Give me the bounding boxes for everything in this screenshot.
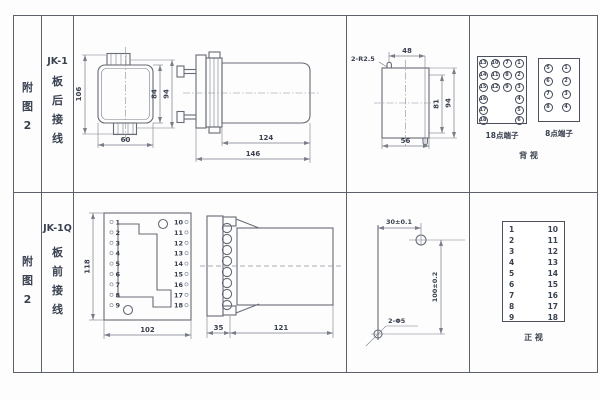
col-divider-1 <box>41 15 42 373</box>
dim-118: 118 <box>84 259 92 274</box>
terminal-14: 14 <box>479 71 488 80</box>
col-divider-4 <box>469 15 470 373</box>
rear-view-drawing: 106 84 94 60 <box>75 47 175 148</box>
fig-char: 图 <box>14 97 41 116</box>
dim-100: 100±0.2 <box>431 272 439 303</box>
wiring-char: 接 <box>42 110 73 129</box>
radius-label: 2-R2.5 <box>351 55 375 63</box>
panel-num-6: 6 <box>509 280 514 289</box>
fig-char: 附 <box>14 78 41 97</box>
panel-num-12: 12 <box>536 247 558 256</box>
terminal-8p-4: 4 <box>562 103 571 112</box>
drawing-sheet: 附 图 2 JK-1 板 后 接 线 106 84 <box>0 0 600 400</box>
table-border-right <box>597 15 598 373</box>
svg-text:7: 7 <box>116 281 121 289</box>
terminal-8p-5: 5 <box>544 64 553 73</box>
terminal-8: 8 <box>503 71 512 80</box>
mounting-hole-top <box>159 220 168 229</box>
svg-text:13: 13 <box>174 250 183 258</box>
svg-text:14: 14 <box>174 260 184 268</box>
model-label-jk1q: JK-1Q <box>41 223 74 234</box>
mounting-hole-bottom <box>124 306 133 315</box>
dim-81: 81 <box>433 99 441 109</box>
panel-num-7: 7 <box>509 291 514 300</box>
svg-text:15: 15 <box>174 271 184 279</box>
fig-char: 附 <box>14 252 41 271</box>
terminal-8p-3: 3 <box>562 90 571 99</box>
side-view-rear-drawing: 124 146 <box>177 52 319 163</box>
wiring-char: 线 <box>42 129 73 148</box>
terminal-12: 12 <box>491 83 500 92</box>
svg-text:2: 2 <box>116 229 121 237</box>
dim-30: 30±0.1 <box>386 218 412 226</box>
panel-num-2: 2 <box>509 236 514 245</box>
terminal-5: 5 <box>515 106 524 115</box>
terminal-16: 16 <box>479 95 488 104</box>
terminal-3: 3 <box>515 83 524 92</box>
dim-94: 94 <box>163 89 171 99</box>
terminal-11: 11 <box>491 71 500 80</box>
panel-num-9: 9 <box>509 313 514 322</box>
panel-num-11: 11 <box>536 236 558 245</box>
terminal-8p-1: 1 <box>562 64 571 73</box>
wiring-char: 线 <box>42 300 73 319</box>
svg-text:17: 17 <box>174 291 183 299</box>
dim-106: 106 <box>75 87 83 102</box>
svg-text:5: 5 <box>116 260 121 268</box>
drilling-plan-drawing: 30±0.1 100±0.2 2-Φ5 <box>346 192 469 372</box>
terminal-7: 7 <box>503 59 512 68</box>
terminal-8p-8: 8 <box>544 103 553 112</box>
caption-18pt: 18点端子 <box>472 130 532 141</box>
panel-num-15: 15 <box>536 280 558 289</box>
panel-num-3: 3 <box>509 247 514 256</box>
terminal-18: 18 <box>479 116 488 125</box>
terminal-10: 10 <box>491 59 500 68</box>
fig-char: 2 <box>14 116 41 135</box>
panel-num-4: 4 <box>509 258 514 267</box>
dim-60: 60 <box>121 136 131 144</box>
keying-notch <box>387 62 391 68</box>
front-left-terminals: 1 2 3 4 5 6 7 8 9 <box>110 219 121 310</box>
dim-48: 48 <box>402 47 412 55</box>
caption-8pt: 8点端子 <box>535 128 583 139</box>
fig-char: 图 <box>14 271 41 290</box>
terminal-4: 4 <box>515 95 524 104</box>
figure-label-row1: 附 图 2 <box>14 78 41 135</box>
dim-35: 35 <box>214 324 224 332</box>
table-border-bottom <box>13 372 597 373</box>
jk1-outline-drawing: 106 84 94 60 124 <box>73 15 346 192</box>
panel-num-8: 8 <box>509 302 514 311</box>
dim-146: 146 <box>246 150 261 158</box>
figure-label-row2: 附 图 2 <box>14 252 41 309</box>
caption-front-view: 正 视 <box>502 332 565 343</box>
jk1q-outline-drawing: 1 2 3 4 5 6 7 8 9 10 11 12 13 14 15 16 1… <box>73 192 346 372</box>
caption-back-view: 背 视 <box>477 150 580 161</box>
wiring-char: 板 <box>42 72 73 91</box>
dim-124: 124 <box>259 134 274 142</box>
model-label-jk1: JK-1 <box>42 56 73 67</box>
svg-text:11: 11 <box>174 229 184 237</box>
svg-text:4: 4 <box>116 250 121 258</box>
fig-char: 2 <box>14 290 41 309</box>
terminal-8p-7: 7 <box>544 90 553 99</box>
hole-diameter-label: 2-Φ5 <box>388 317 406 325</box>
panel-num-13: 13 <box>536 258 558 267</box>
svg-text:1: 1 <box>116 219 121 227</box>
panel-num-1: 1 <box>509 225 514 234</box>
svg-text:9: 9 <box>116 302 121 310</box>
wiring-label-row1: 板 后 接 线 <box>42 72 73 148</box>
dim-94-cutout: 94 <box>445 98 453 108</box>
svg-text:12: 12 <box>174 239 183 247</box>
wiring-label-row2: 板 前 接 线 <box>42 243 73 319</box>
dim-56: 56 <box>401 137 411 145</box>
cover-outline <box>118 224 171 307</box>
terminal-1: 1 <box>515 59 524 68</box>
svg-text:6: 6 <box>116 271 121 279</box>
terminal-17: 17 <box>479 106 488 115</box>
terminal-8p-6: 6 <box>544 77 553 86</box>
table-border-left <box>13 15 14 373</box>
wiring-char: 板 <box>42 243 73 262</box>
panel-num-17: 17 <box>536 302 558 311</box>
terminal-15: 15 <box>479 83 488 92</box>
panel-num-14: 14 <box>536 269 558 278</box>
terminal-9: 9 <box>503 83 512 92</box>
svg-text:10: 10 <box>174 219 184 227</box>
wiring-char: 后 <box>42 91 73 110</box>
panel-num-18: 18 <box>536 313 558 322</box>
svg-text:3: 3 <box>116 239 121 247</box>
dim-121: 121 <box>274 324 289 332</box>
front-right-terminals: 10 11 12 13 14 15 16 17 18 <box>174 219 188 310</box>
terminal-13: 13 <box>479 59 488 68</box>
terminal-2: 2 <box>515 71 524 80</box>
panel-num-5: 5 <box>509 269 514 278</box>
svg-text:18: 18 <box>174 302 184 310</box>
side-view-front-drawing: 35 121 <box>200 216 341 338</box>
svg-text:8: 8 <box>116 291 121 299</box>
panel-cutout-drawing: 2-R2.5 48 81 94 56 <box>346 15 469 192</box>
wiring-char: 接 <box>42 281 73 300</box>
panel-num-16: 16 <box>536 291 558 300</box>
dim-84: 84 <box>151 89 159 99</box>
svg-text:16: 16 <box>174 281 184 289</box>
wiring-char: 前 <box>42 262 73 281</box>
dim-102: 102 <box>140 326 155 334</box>
terminal-8p-2: 2 <box>562 77 571 86</box>
front-view-drawing: 1 2 3 4 5 6 7 8 9 10 11 12 13 14 15 16 1… <box>84 213 192 339</box>
panel-num-10: 10 <box>536 225 558 234</box>
terminal-6: 6 <box>515 116 524 125</box>
